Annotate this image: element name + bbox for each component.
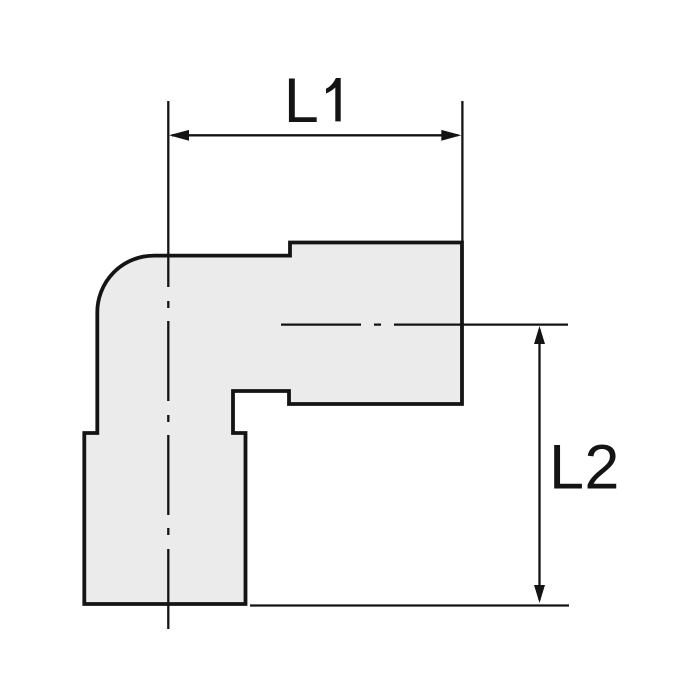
svg-text:2: 2 xyxy=(584,433,619,503)
svg-text:L: L xyxy=(549,433,584,503)
svg-text:L: L xyxy=(284,66,319,136)
